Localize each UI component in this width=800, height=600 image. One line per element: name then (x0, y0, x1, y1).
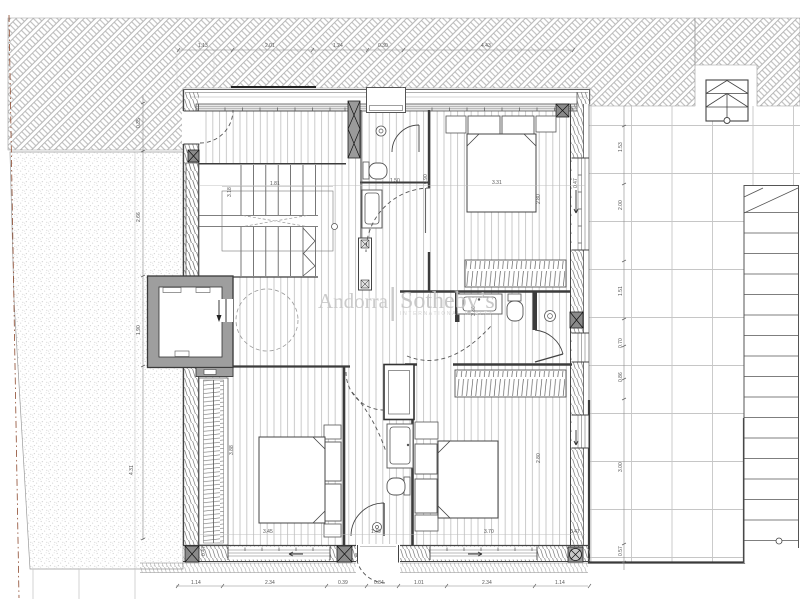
svg-text:1.24: 1.24 (333, 43, 343, 49)
svg-text:1.81: 1.81 (270, 181, 280, 187)
svg-text:0.47: 0.47 (201, 546, 207, 556)
svg-text:4.31: 4.31 (129, 465, 135, 475)
svg-text:1.01: 1.01 (414, 580, 424, 586)
svg-text:0.70: 0.70 (618, 338, 624, 348)
svg-text:2.01: 2.01 (265, 43, 275, 49)
svg-text:0.47: 0.47 (573, 178, 579, 188)
svg-text:0.39: 0.39 (338, 580, 348, 586)
svg-text:0.47: 0.47 (570, 529, 580, 535)
svg-text:0.86: 0.86 (618, 372, 624, 382)
svg-text:1.51: 1.51 (618, 286, 624, 296)
svg-text:3.70: 3.70 (484, 529, 494, 535)
svg-text:1.13: 1.13 (198, 43, 208, 49)
svg-text:3.88: 3.88 (229, 445, 235, 455)
svg-text:2.34: 2.34 (482, 580, 492, 586)
svg-text:3.45: 3.45 (263, 529, 273, 535)
svg-text:3.00: 3.00 (618, 462, 624, 472)
svg-text:2.80: 2.80 (536, 194, 542, 204)
svg-text:2.34: 2.34 (265, 580, 275, 586)
svg-text:0.57: 0.57 (618, 546, 624, 556)
svg-text:1.14: 1.14 (555, 580, 565, 586)
svg-text:1.53: 1.53 (618, 142, 624, 152)
svg-text:1.49: 1.49 (371, 529, 381, 535)
svg-text:0.90: 0.90 (423, 174, 429, 184)
svg-text:4.43: 4.43 (481, 43, 491, 49)
svg-text:3.31: 3.31 (492, 180, 502, 186)
svg-text:1.90: 1.90 (136, 325, 142, 335)
svg-text:2.00: 2.00 (618, 200, 624, 210)
svg-text:INTERNATIONAL REALTY: INTERNATIONAL REALTY (400, 311, 494, 317)
svg-text:1.50: 1.50 (390, 178, 400, 184)
svg-text:0.35: 0.35 (136, 118, 142, 128)
svg-text:Andorra: Andorra (318, 289, 389, 313)
svg-text:2.80: 2.80 (536, 453, 542, 463)
svg-text:2.66: 2.66 (136, 212, 142, 222)
svg-text:0.84: 0.84 (374, 580, 384, 586)
svg-text:3.18: 3.18 (227, 187, 233, 197)
svg-text:1.14: 1.14 (191, 580, 201, 586)
svg-text:0.30: 0.30 (378, 43, 388, 49)
